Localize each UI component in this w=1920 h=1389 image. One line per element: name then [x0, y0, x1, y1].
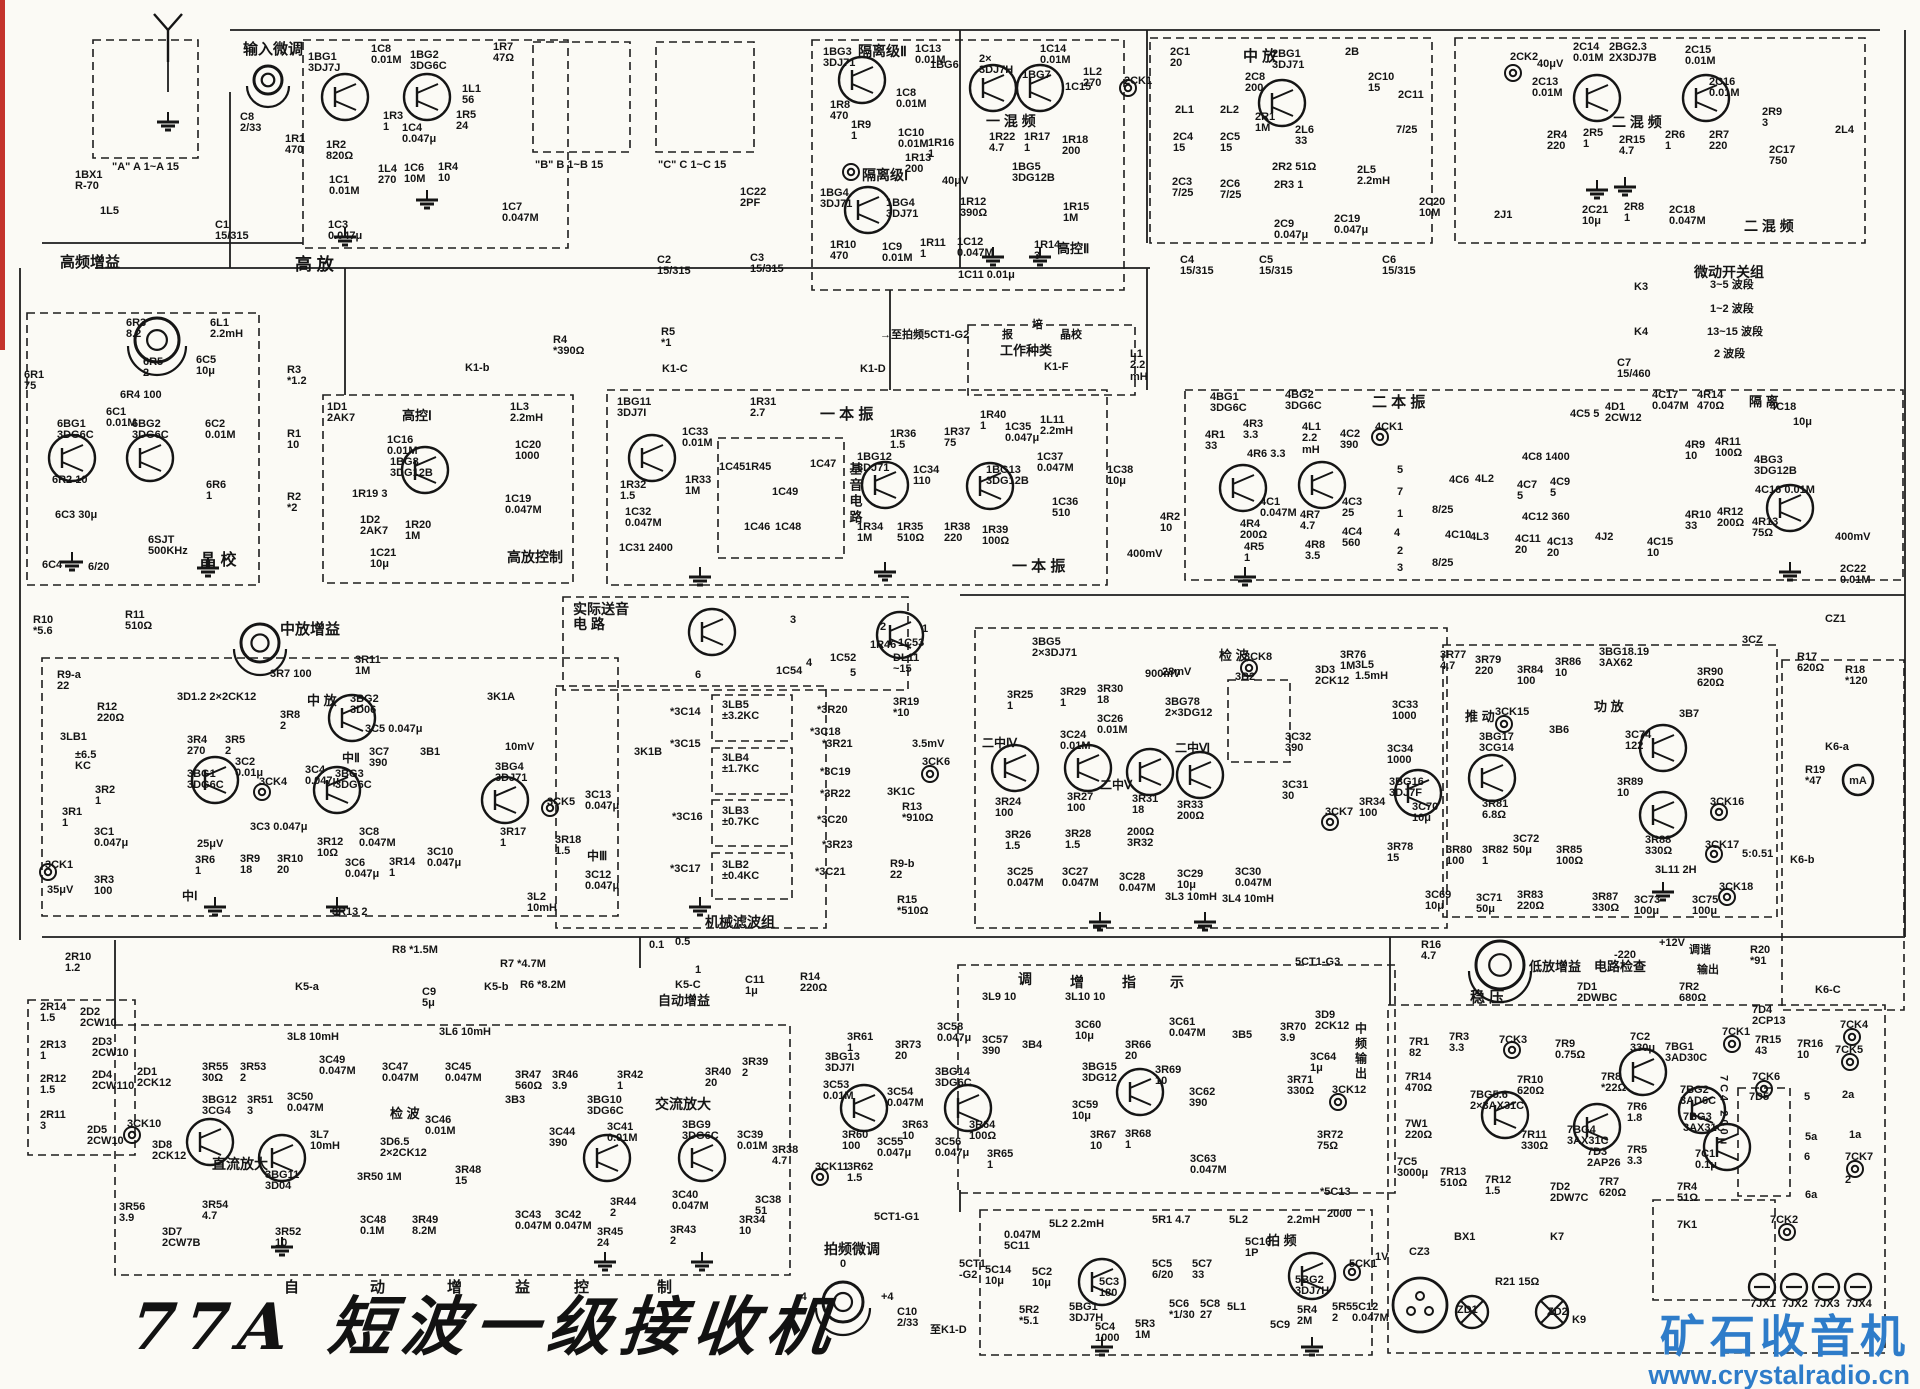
- watermark-sitename: 矿石收音机: [1648, 1313, 1910, 1360]
- component-label: 3R84 100: [1517, 665, 1543, 688]
- transistor-emitter: [1312, 489, 1333, 498]
- component-label: 3L6 10mH: [439, 1027, 491, 1038]
- component-label: 1R7 47Ω: [493, 42, 514, 65]
- test-point-center: [1335, 1099, 1341, 1105]
- component-label: 1C47: [810, 459, 836, 470]
- component-label: 4C16 0.01M: [1755, 485, 1815, 496]
- transistor-emitter: [1653, 752, 1674, 761]
- component-label: 1R34 1M: [857, 522, 883, 545]
- component-label: 3LB5 ±3.2KC: [722, 700, 759, 723]
- component-label: 2: [880, 622, 886, 633]
- component-label: 7D2 2DW7C: [1550, 1182, 1589, 1205]
- test-point-center: [1847, 1059, 1853, 1065]
- adjust-knob-center: [1489, 954, 1511, 976]
- component-label: 5R5 2: [1332, 1302, 1352, 1325]
- component-label: 7R16 10: [1797, 1039, 1823, 1062]
- component-label: 5R3 1M: [1135, 1319, 1155, 1342]
- component-label: K3: [1634, 282, 1648, 293]
- component-label: 二中Ⅴ: [1100, 779, 1132, 791]
- component-label: 2C3 7/25: [1172, 177, 1193, 200]
- component-label: 3L7 10mH: [310, 1130, 340, 1153]
- component-label: C4 15/315: [1180, 255, 1214, 278]
- component-label: *5C13: [1320, 1187, 1351, 1198]
- transistor-collector: [1233, 475, 1254, 484]
- component-label: 3R64 100Ω: [969, 1120, 996, 1143]
- transistor-collector: [1130, 1079, 1151, 1088]
- transistor-collector: [1078, 755, 1099, 764]
- component-label: 400mV: [1835, 532, 1870, 543]
- component-label: 3R52 10: [275, 1227, 301, 1250]
- test-point-center: [1377, 434, 1383, 440]
- component-label: 3C26 0.01M: [1097, 714, 1128, 737]
- component-label: 3: [1397, 563, 1403, 574]
- component-label: 4C2 390: [1340, 429, 1360, 452]
- component-label: 4R3 3.3: [1243, 419, 1263, 442]
- component-label: 3K1A: [487, 692, 515, 703]
- component-label: 3C27 0.047M: [1062, 867, 1099, 890]
- component-label: 4R9 10: [1685, 440, 1705, 463]
- component-label: 5: [850, 668, 856, 679]
- component-label: C9 5μ: [422, 987, 436, 1010]
- transistor-collector: [272, 1145, 293, 1154]
- component-label: 2C20 10M: [1419, 197, 1445, 220]
- test-point-icon: [1505, 65, 1521, 81]
- component-label: K1-C: [662, 364, 688, 375]
- component-label: 3BG14 3DG6C: [935, 1067, 972, 1090]
- component-label: 3B5: [1232, 1030, 1252, 1041]
- component-label: 3CK11: [815, 1162, 849, 1173]
- component-label: 0: [840, 1259, 846, 1270]
- component-label: 3C43 0.047M: [515, 1210, 552, 1233]
- component-label: 5C8 27: [1200, 1299, 1220, 1322]
- component-label: 机械滤波组: [705, 915, 775, 930]
- component-label: 3R3 100: [94, 875, 114, 898]
- transistor-collector: [1653, 802, 1674, 811]
- component-label: 40μV: [942, 176, 968, 187]
- component-label: 1C22 2PF: [740, 187, 766, 210]
- component-label: 3CK17: [1705, 840, 1739, 851]
- transistor-collector: [1005, 755, 1026, 764]
- component-label: 3BG4 3DJ71: [495, 762, 527, 785]
- component-label: 1BG6: [930, 60, 959, 71]
- component-label: 3C42 0.047M: [555, 1210, 592, 1233]
- transistor-icon: [322, 74, 368, 120]
- component-label: 2C9 0.047μ: [1274, 219, 1308, 242]
- component-label: 3R6 1: [195, 855, 215, 878]
- component-label: 2L4: [1835, 125, 1854, 136]
- component-label: 1R18 200: [1062, 135, 1088, 158]
- component-label: K1-D: [860, 364, 886, 375]
- component-label: 4R5 1: [1244, 542, 1264, 565]
- component-label: 3BG15 3DG12: [1082, 1062, 1117, 1085]
- component-label: 2L1: [1175, 105, 1194, 116]
- component-label: 4R13 75Ω: [1752, 517, 1778, 540]
- component-label: 直流放大: [212, 1157, 268, 1172]
- component-label: 3C31 30: [1282, 780, 1308, 803]
- component-label: 1C38 10μ: [1107, 465, 1133, 488]
- component-label: 0.1: [649, 940, 664, 951]
- schematic-scan: mA 输入微调高频增益"A" A 1~A 151BX1 R-701L5C8 2/…: [0, 0, 1920, 1389]
- component-label: 35μV: [47, 885, 73, 896]
- component-label: 3CK10: [127, 1119, 161, 1130]
- component-label: C1 15/315: [215, 220, 249, 243]
- component-label: 400mV: [1127, 549, 1162, 560]
- transistor-icon: [1469, 755, 1515, 801]
- component-label: 1D2 2AK7: [360, 515, 388, 538]
- component-label: 7: [1397, 487, 1403, 498]
- transistor-collector: [1587, 1114, 1608, 1123]
- component-label: 1C46: [744, 522, 770, 533]
- transistor-emitter: [1233, 492, 1254, 501]
- component-label: 2L6 33: [1295, 125, 1314, 148]
- component-label: 3BG5 2×3DJ71: [1032, 637, 1077, 660]
- component-label: 1C49: [772, 487, 798, 498]
- component-label: 4R2 10: [1160, 512, 1180, 535]
- component-label: 1R12 390Ω: [960, 197, 987, 220]
- transistor-emitter: [342, 722, 363, 731]
- component-label: 3C40 0.047M: [672, 1190, 709, 1213]
- component-label: 中Ⅲ: [587, 850, 607, 862]
- component-label: 中Ⅰ: [182, 890, 198, 902]
- component-label: 3CK5: [547, 797, 575, 808]
- component-label: 3CK18: [1719, 882, 1753, 893]
- component-label: 5C4 1000: [1095, 1322, 1119, 1345]
- component-label: 3R90 620Ω: [1697, 667, 1724, 690]
- component-label: *3R20: [817, 705, 848, 716]
- component-label: 3B7: [1679, 709, 1699, 720]
- component-label: 3CK1: [45, 860, 73, 871]
- component-label: 微动开关组: [1694, 265, 1764, 280]
- component-label: 2R2 51Ω: [1272, 162, 1316, 173]
- component-label: K1-F: [1044, 362, 1068, 373]
- component-label: 3R46 3.9: [552, 1070, 578, 1093]
- component-label: 4C7 5: [1517, 480, 1537, 503]
- component-label: 3R60 100: [842, 1130, 868, 1153]
- component-label: 3BG16 3DJ7F: [1389, 777, 1424, 800]
- component-label: 3C56 0.047μ: [935, 1137, 969, 1160]
- component-label: *3C15: [670, 739, 701, 750]
- component-label: 2L2: [1220, 105, 1239, 116]
- component-label: 2R14 1.5: [40, 1002, 66, 1025]
- component-label: 6C2 0.01M: [205, 419, 236, 442]
- transistor-emitter: [597, 1162, 618, 1171]
- component-label: 1C36 510: [1052, 497, 1078, 520]
- component-label: 5: [1804, 1092, 1810, 1103]
- component-label: 1C21 10μ: [370, 548, 396, 571]
- section-box: [533, 42, 630, 152]
- component-label: 5C12 0.047M: [1352, 1302, 1389, 1325]
- component-label: 增: [1070, 975, 1084, 990]
- component-label: *3C19: [820, 767, 851, 778]
- transistor-collector: [958, 1095, 979, 1104]
- component-label: 2R15 4.7: [1619, 135, 1645, 158]
- transistor-emitter: [1495, 1119, 1516, 1128]
- component-label: 2C10 15: [1368, 72, 1394, 95]
- component-label: 3C30 0.047M: [1235, 867, 1272, 890]
- test-point-center: [817, 1174, 823, 1180]
- transistor-emitter: [1482, 782, 1503, 791]
- component-label: 4R7 4.7: [1300, 510, 1320, 533]
- component-label: 1C31 2400: [619, 543, 673, 554]
- component-label: 3L3 10mH: [1165, 892, 1217, 903]
- component-label: 6: [1804, 1152, 1810, 1163]
- component-label: R12 220Ω: [97, 702, 124, 725]
- component-label: 调: [1018, 972, 1032, 987]
- component-label: 6: [695, 670, 701, 681]
- component-label: 2D2 2CW10: [80, 1007, 117, 1030]
- component-label: 二中Ⅵ: [1175, 742, 1210, 754]
- component-label: 中 放: [307, 694, 337, 708]
- component-label: 3R13 2: [332, 907, 367, 918]
- transistor-collector: [854, 1095, 875, 1104]
- component-label: R19 *47: [1805, 765, 1825, 788]
- component-label: *3C14: [670, 707, 701, 718]
- component-label: 高控Ⅰ: [402, 409, 432, 423]
- component-label: 二 混 频: [1612, 115, 1662, 130]
- component-label: 调谐: [1689, 945, 1711, 956]
- section-box: [968, 325, 1135, 395]
- component-label: 2C13 0.01M: [1532, 77, 1563, 100]
- component-label: 3C6 0.047μ: [345, 858, 379, 881]
- component-label: 3CK4: [259, 777, 287, 788]
- component-label: 2CK2: [1510, 52, 1538, 63]
- component-label: 3D8 2CK12: [152, 1140, 186, 1163]
- watermark-url: www.crystalradio.cn: [1648, 1361, 1910, 1389]
- component-label: 3R12 10Ω: [317, 837, 343, 860]
- component-label: 3BG12 3CG4: [202, 1095, 237, 1118]
- component-label: 示: [1170, 975, 1184, 990]
- component-label: 3R43 2: [670, 1225, 696, 1248]
- component-label: 5C2 10μ: [1032, 1267, 1052, 1290]
- transistor-icon: [1620, 1049, 1666, 1095]
- component-label: 二 本 振: [1372, 395, 1425, 411]
- component-label: 1BG8 3DG12B: [390, 457, 433, 480]
- component-label: 7R3 3.3: [1449, 1032, 1469, 1055]
- component-label: R20 *91: [1750, 945, 1770, 968]
- component-label: 1BG12 3DJ71: [857, 452, 892, 475]
- component-label: 7CK6: [1752, 1072, 1780, 1083]
- component-label: 7CK5: [1835, 1045, 1863, 1056]
- adjust-knob-center: [251, 634, 268, 651]
- transistor-icon: [629, 435, 675, 481]
- component-label: 3C25 0.047M: [1007, 867, 1044, 890]
- component-label: 1a: [1849, 1130, 1861, 1141]
- component-label: 25μV: [197, 839, 223, 850]
- component-label: 3R70 3.9: [1280, 1022, 1306, 1045]
- component-label: 3C38 51: [755, 1195, 781, 1218]
- component-label: 3R7 100: [270, 669, 312, 680]
- component-label: *3C21: [815, 867, 846, 878]
- component-label: 5C3 180: [1099, 1277, 1119, 1300]
- component-label: K6-C: [1815, 985, 1841, 996]
- component-label: 3C45 0.047M: [445, 1062, 482, 1085]
- component-label: 2C14 0.01M: [1573, 42, 1604, 65]
- component-label: 3BG17 3CG14: [1479, 732, 1514, 755]
- component-label: 7CK1: [1722, 1027, 1750, 1038]
- component-label: *3C17: [670, 864, 701, 875]
- adjust-knob-center: [262, 74, 275, 87]
- component-label: 1C54: [776, 666, 802, 677]
- component-label: 2BG1 3DJ71: [1272, 49, 1304, 72]
- component-label: R5 *1: [661, 327, 675, 350]
- component-label: 3R68 1: [1125, 1129, 1151, 1152]
- component-label: 3LB4 ±1.7KC: [722, 753, 759, 776]
- component-label: 1C19 0.047M: [505, 494, 542, 517]
- component-label: 3D6.5 2×2CK12: [380, 1137, 427, 1160]
- component-label: 6R6 1: [206, 480, 226, 503]
- component-label: 5C14 10μ: [985, 1265, 1011, 1288]
- component-label: 6R1 75: [24, 370, 44, 393]
- component-label: 4R8 3.5: [1305, 540, 1325, 563]
- component-label: 4L2: [1475, 474, 1494, 485]
- transistor-emitter: [1130, 1096, 1151, 1105]
- component-label: 4R10 33: [1685, 510, 1711, 533]
- component-label: 3B3: [505, 1095, 525, 1106]
- component-label: K5-b: [484, 982, 508, 993]
- component-label: 1R33 1M: [685, 475, 711, 498]
- section-box: [1228, 680, 1290, 762]
- test-point-center: [1849, 1034, 1855, 1040]
- component-label: R9-b 22: [890, 859, 914, 882]
- section-box: [1782, 660, 1904, 1010]
- adjust-knob-arrow: [247, 86, 289, 107]
- component-label: 1C14 0.01M: [1040, 44, 1071, 67]
- component-label: 3R87 330Ω: [1592, 892, 1619, 915]
- component-label: ±6.5 KC: [75, 750, 96, 773]
- component-label: 3R49 8.2M: [412, 1215, 438, 1238]
- component-label: 5: [1397, 465, 1403, 476]
- component-label: 4R11 100Ω: [1715, 437, 1742, 460]
- component-label: 7CK7: [1845, 1152, 1873, 1163]
- component-label: R8 *1.5M: [392, 945, 438, 956]
- component-label: 7/25: [1396, 125, 1417, 136]
- transistor-icon: [1127, 749, 1173, 795]
- component-label: 2C1 20: [1170, 47, 1190, 70]
- component-label: 7BG4 3AX31C: [1567, 1125, 1609, 1148]
- component-label: 7R8 *22Ω: [1601, 1072, 1626, 1095]
- component-label: 高控Ⅱ: [1057, 242, 1089, 256]
- test-point-center: [1501, 721, 1507, 727]
- component-label: 5C10 1P: [1245, 1237, 1271, 1260]
- component-label: 3L11 2H: [1655, 865, 1697, 876]
- component-label: 3R86 10: [1555, 657, 1581, 680]
- component-label: R17 620Ω: [1797, 652, 1824, 675]
- component-label: 5C5 6/20: [1152, 1259, 1173, 1282]
- component-label: 0.047M 5C11: [1004, 1230, 1041, 1253]
- component-label: 1C48: [775, 522, 801, 533]
- component-label: 6SJT 500KHz: [148, 535, 188, 558]
- section-box: [1653, 1200, 1775, 1300]
- component-label: 2R6 1: [1665, 130, 1685, 153]
- component-label: 7CK4: [1840, 1020, 1868, 1031]
- component-label: 3C3 0.047μ: [250, 822, 308, 833]
- component-label: 1C1 0.01M: [329, 175, 360, 198]
- component-label: R16 4.7: [1421, 940, 1441, 963]
- component-label: 5C6 *1/30: [1169, 1299, 1195, 1322]
- component-label: 4BG2 3DG6C: [1285, 390, 1322, 413]
- component-label: C10 2/33: [897, 1307, 918, 1330]
- component-label: K6-b: [1790, 855, 1814, 866]
- component-label: 1R20 1M: [405, 520, 431, 543]
- component-label: 3R50 1M: [357, 1172, 402, 1183]
- component-label: "A" A 1~A 15: [112, 162, 179, 173]
- component-label: 1~2 波段: [1710, 304, 1754, 315]
- component-label: R15 *510Ω: [897, 895, 928, 918]
- component-label: 7R1 82: [1409, 1037, 1429, 1060]
- component-label: 3C49 0.047M: [319, 1055, 356, 1078]
- component-label: "C" C 1~C 15: [658, 160, 726, 171]
- scan-artifact: [0, 0, 5, 350]
- component-label: 7JX4: [1846, 1299, 1872, 1310]
- component-label: 5L2: [1229, 1215, 1248, 1226]
- component-label: 3D7 2CW7B: [162, 1227, 201, 1250]
- component-label: 3L4 10mH: [1222, 894, 1274, 905]
- test-point-center: [259, 789, 265, 795]
- component-label: 1C7 0.047M: [502, 202, 539, 225]
- component-label: 3C64 1μ: [1310, 1052, 1336, 1075]
- component-label: 1R46: [870, 640, 896, 651]
- component-label: 3BG9 3DG6C: [682, 1120, 719, 1143]
- component-label: K1-b: [465, 363, 489, 374]
- component-label: 3C33 1000: [1392, 700, 1418, 723]
- transistor-collector: [692, 1145, 713, 1154]
- component-label: 1R35 510Ω: [897, 522, 924, 545]
- component-label: 3R56 3.9: [119, 1202, 145, 1225]
- component-label: 4L3: [1470, 532, 1489, 543]
- component-label: 指: [1122, 975, 1136, 990]
- component-label: 3R44 2: [610, 1197, 636, 1220]
- component-label: 2 波段: [1714, 349, 1745, 360]
- component-label: K4: [1634, 327, 1648, 338]
- component-label: R6 *8.2M: [520, 980, 566, 991]
- component-label: 1C9 0.01M: [882, 242, 913, 265]
- component-label: 低放增益: [1529, 960, 1581, 974]
- component-label: 2: [1845, 1175, 1851, 1186]
- component-label: 1R15 1M: [1063, 202, 1089, 225]
- component-label: *3C20: [817, 815, 848, 826]
- component-label: K5-C: [675, 980, 701, 991]
- component-label: 7K1: [1677, 1220, 1697, 1231]
- component-label: 3C74 122: [1625, 730, 1651, 753]
- adjust-knob-center: [147, 330, 167, 350]
- component-label: 2C19 0.047μ: [1334, 214, 1368, 237]
- component-label: 7D3 2AP26: [1587, 1147, 1621, 1170]
- component-label: 6R5 2: [143, 357, 163, 380]
- transistor-emitter: [702, 636, 723, 645]
- component-label: 1D1 2AK7: [327, 402, 355, 425]
- component-label: 3R88 330Ω: [1645, 835, 1672, 858]
- component-label: R4 *390Ω: [553, 335, 584, 358]
- component-label: 3R51 3: [247, 1095, 273, 1118]
- component-label: 3R78 15: [1387, 842, 1413, 865]
- component-label: 拍频微调: [824, 1242, 880, 1257]
- component-label: 3C44 390: [549, 1127, 575, 1150]
- connector-pin: [1407, 1307, 1415, 1315]
- component-label: R10 *5.6: [33, 615, 53, 638]
- component-label: 3C63 0.047M: [1190, 1154, 1227, 1177]
- transistor-collector: [417, 84, 438, 93]
- component-label: R2 *2: [287, 492, 301, 515]
- component-label: 3C62 390: [1189, 1087, 1215, 1110]
- component-label: 1R16 1: [928, 138, 954, 161]
- transistor-emitter: [495, 804, 516, 813]
- component-label: 3R73 20: [895, 1040, 921, 1063]
- component-label: 4C15 10: [1647, 537, 1673, 560]
- component-label: 7D5: [1749, 1092, 1769, 1103]
- component-label: 3BG18.19 3AX62: [1599, 647, 1649, 670]
- watermark: 矿石收音机 www.crystalradio.cn: [1648, 1313, 1910, 1389]
- component-label: 3R82 1: [1482, 845, 1508, 868]
